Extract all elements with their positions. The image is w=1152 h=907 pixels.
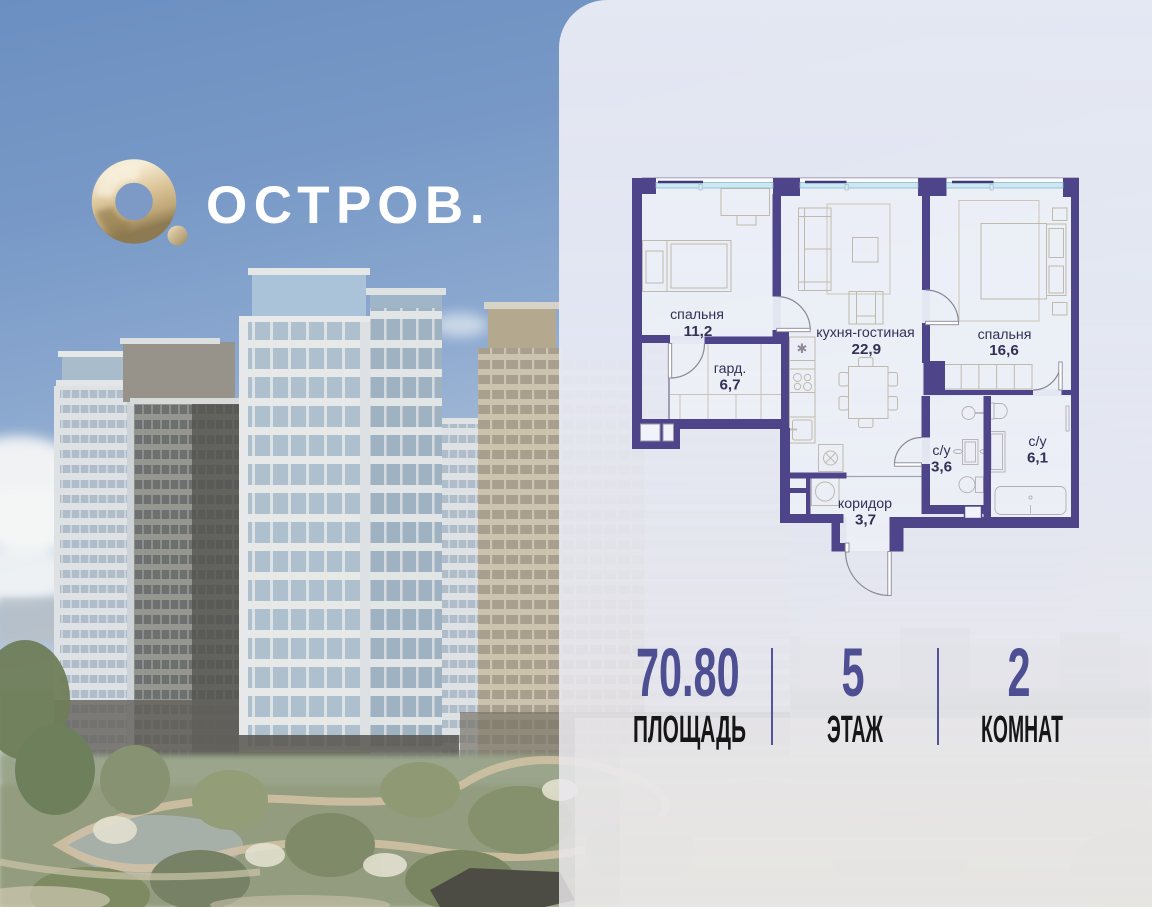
svg-text:кухня-гостиная: кухня-гостиная [816,325,914,341]
svg-text:6,1: 6,1 [1027,450,1049,467]
svg-text:с/у: с/у [932,443,951,459]
svg-text:спальня: спальня [978,327,1032,343]
svg-text:3,7: 3,7 [855,512,876,529]
svg-text:22,9: 22,9 [852,341,882,358]
svg-text:коридор: коридор [838,496,892,512]
svg-text:с/у: с/у [1028,434,1047,450]
svg-text:гард.: гард. [714,361,747,377]
svg-text:3,6: 3,6 [931,459,952,476]
svg-text:спальня: спальня [670,307,724,323]
svg-text:6,7: 6,7 [719,377,740,394]
svg-text:16,6: 16,6 [989,342,1019,359]
svg-text:✱: ✱ [797,341,808,356]
svg-text:11,2: 11,2 [684,323,713,340]
